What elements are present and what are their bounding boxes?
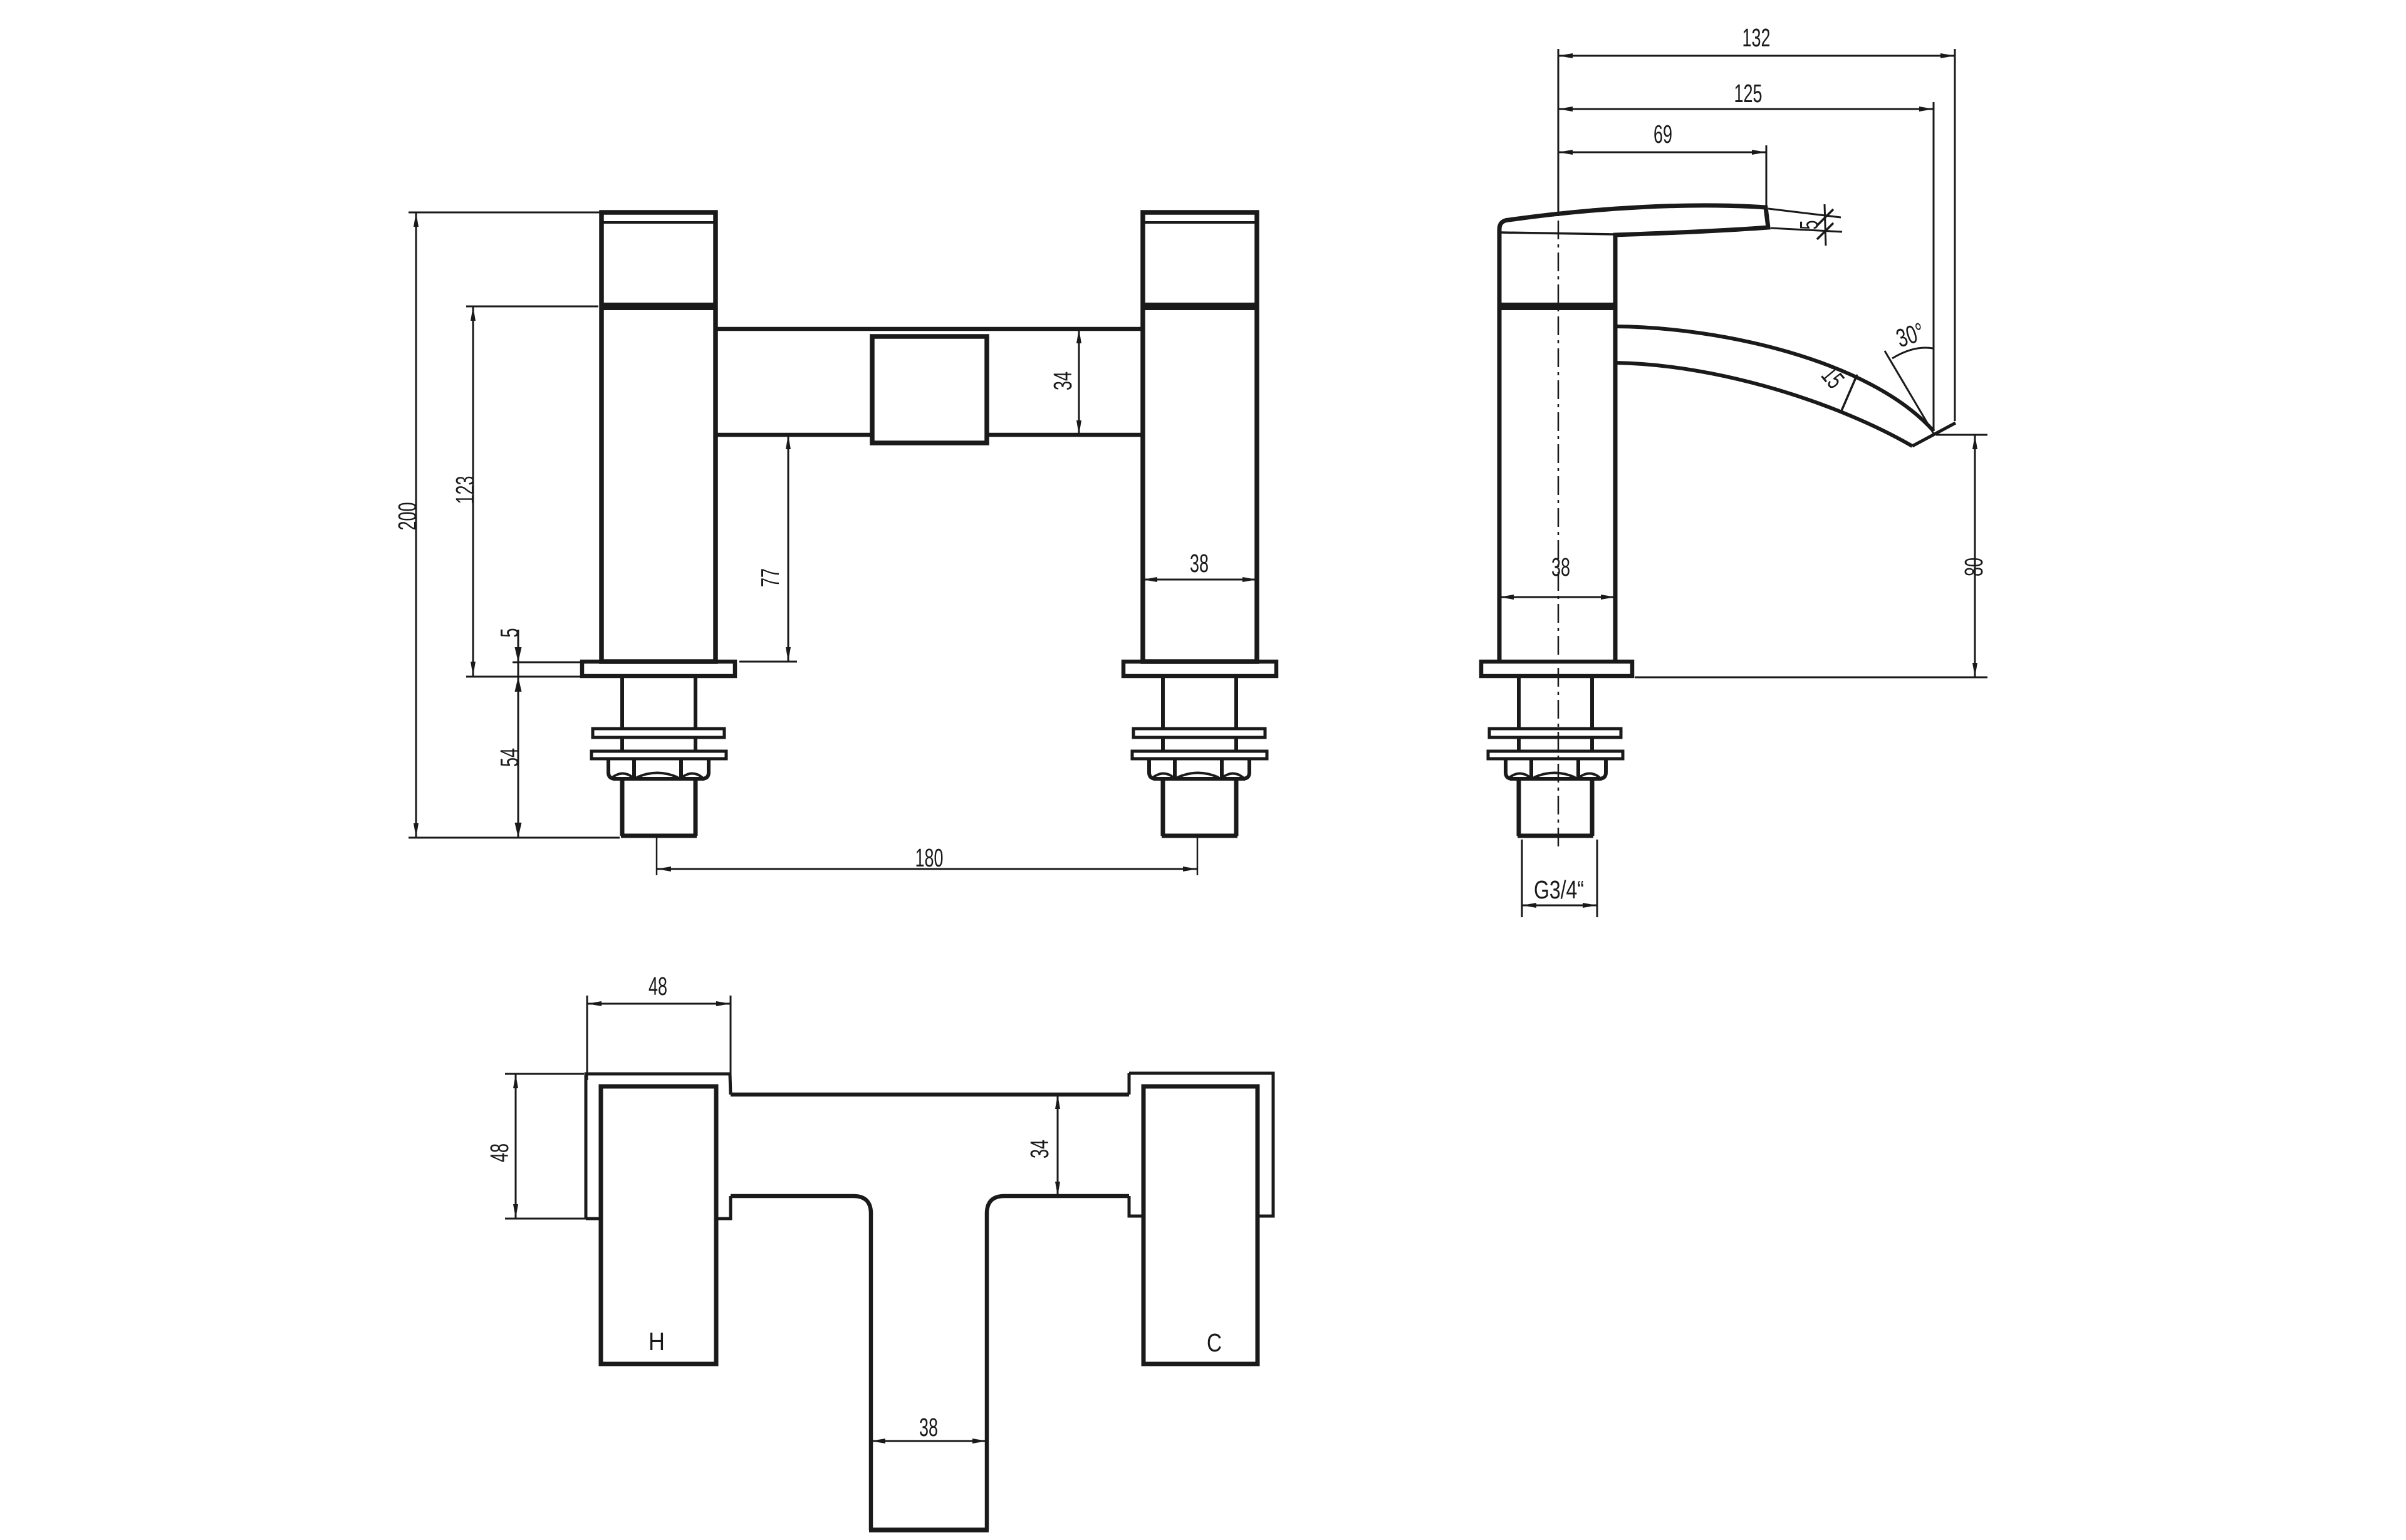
svg-text:38: 38 bbox=[1551, 553, 1570, 581]
svg-text:77: 77 bbox=[756, 568, 784, 587]
svg-text:200: 200 bbox=[393, 502, 422, 531]
svg-text:5: 5 bbox=[495, 628, 524, 638]
svg-text:H: H bbox=[648, 1327, 665, 1356]
svg-text:69: 69 bbox=[1653, 120, 1672, 148]
svg-text:54: 54 bbox=[495, 748, 524, 767]
svg-text:38: 38 bbox=[1190, 549, 1209, 578]
svg-text:5: 5 bbox=[1794, 221, 1823, 230]
svg-text:48: 48 bbox=[648, 972, 667, 1001]
svg-text:15: 15 bbox=[1816, 361, 1850, 394]
svg-text:48: 48 bbox=[485, 1143, 514, 1162]
svg-text:180: 180 bbox=[915, 843, 944, 872]
svg-text:C: C bbox=[1207, 1328, 1222, 1357]
svg-text:80: 80 bbox=[1959, 558, 1988, 576]
svg-text:34: 34 bbox=[1025, 1140, 1054, 1158]
svg-text:123: 123 bbox=[450, 476, 479, 504]
svg-text:125: 125 bbox=[1734, 79, 1763, 108]
svg-text:G3/4“: G3/4“ bbox=[1534, 875, 1584, 904]
svg-text:34: 34 bbox=[1048, 372, 1077, 390]
svg-text:132: 132 bbox=[1742, 23, 1771, 52]
svg-text:38: 38 bbox=[919, 1413, 938, 1442]
